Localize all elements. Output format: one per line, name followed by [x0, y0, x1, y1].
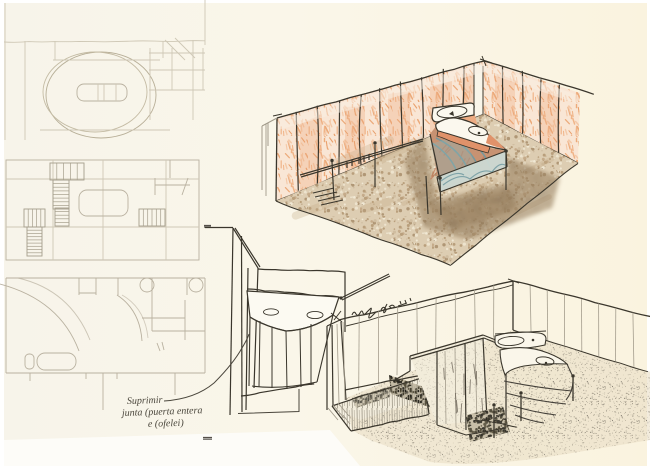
- svg-text:e (ofelei): e (ofelei): [148, 418, 185, 430]
- svg-text:Suprimir: Suprimir: [127, 395, 163, 407]
